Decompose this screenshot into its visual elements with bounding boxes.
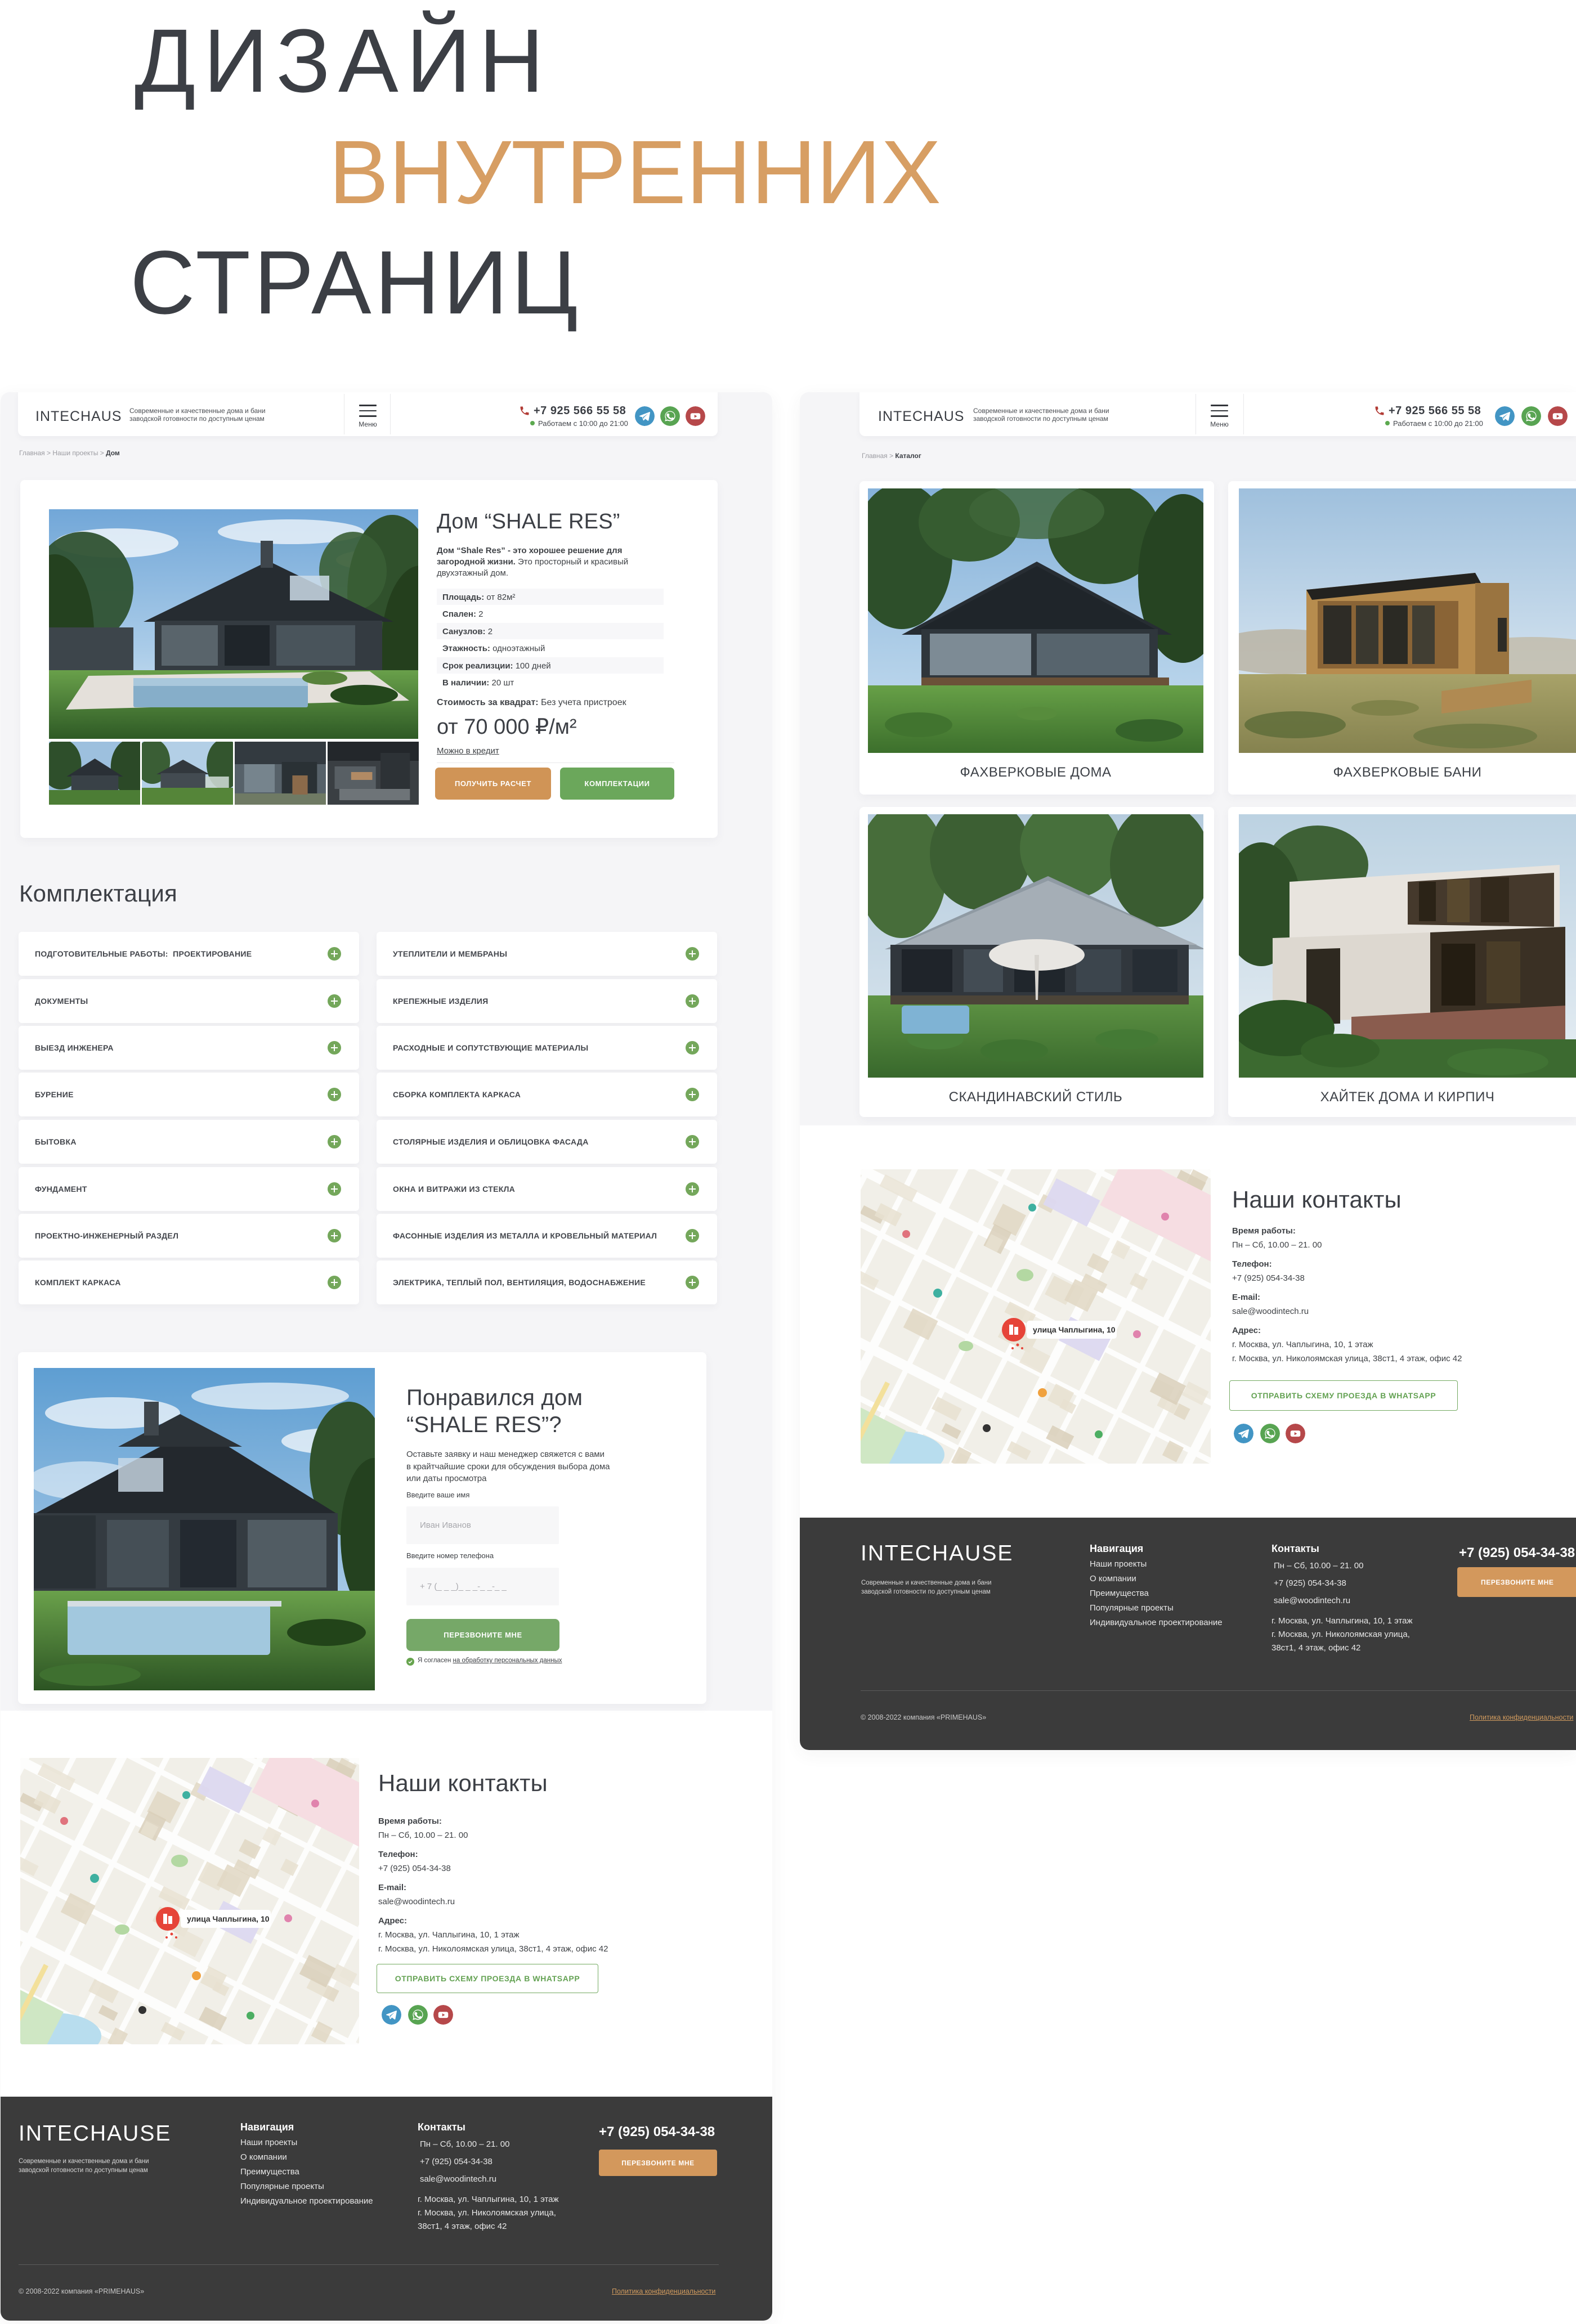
svg-text:улица Чаплыгина, 10: улица Чаплыгина, 10 (187, 1914, 270, 1923)
svg-text:улица Чаплыгина, 10: улица Чаплыгина, 10 (1033, 1325, 1116, 1334)
